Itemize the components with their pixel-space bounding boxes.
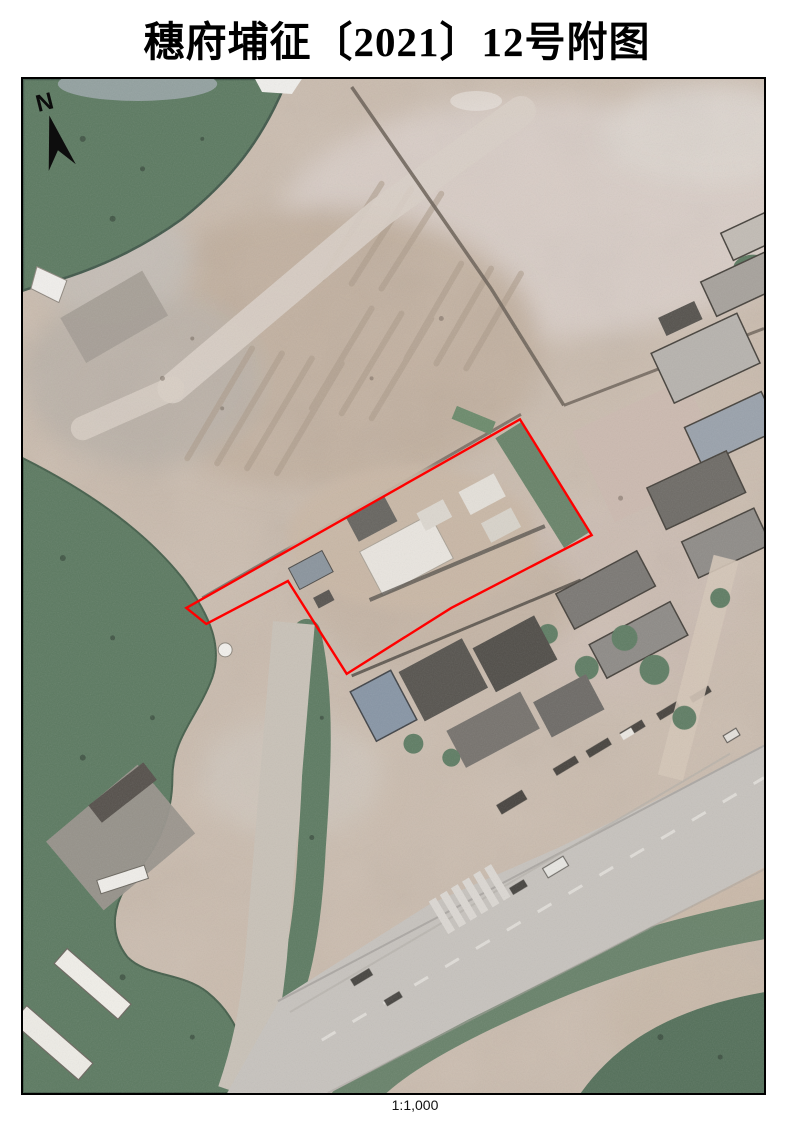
scale-label: 1:1,000 [18, 1097, 794, 1113]
satellite-image: N [23, 79, 764, 1093]
page-title: 穗府埔征〔2021〕12号附图 [0, 8, 794, 68]
photo-grain [23, 79, 764, 1093]
satellite-map: N [21, 77, 766, 1095]
